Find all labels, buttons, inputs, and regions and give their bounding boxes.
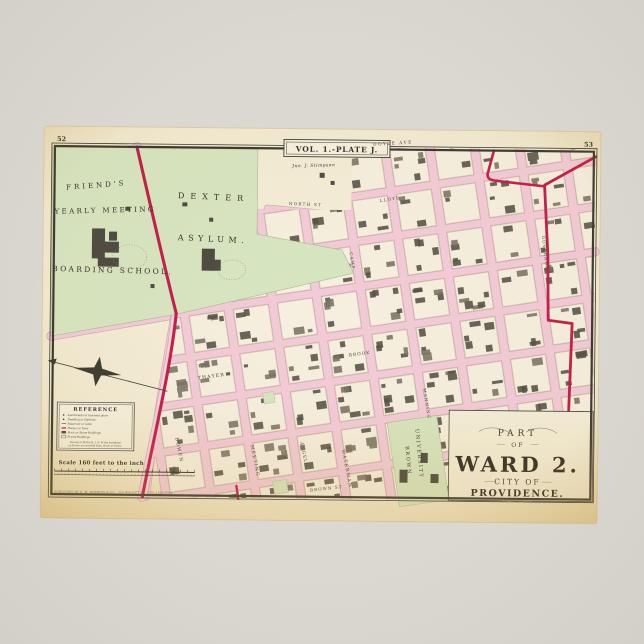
- map-artwork: VOL. 1.-PLATE J. 52 53 REFERENCE Apartme…: [0, 0, 644, 644]
- building-footprint: [634, 395, 639, 400]
- city-block: [606, 386, 644, 427]
- building-footprint: [612, 239, 617, 243]
- building-footprint: [201, 523, 209, 531]
- street-edge: [594, 40, 644, 554]
- building-footprint: [602, 349, 610, 356]
- building-footprint: [599, 325, 608, 334]
- building-footprint: [225, 523, 236, 528]
- building-footprint: [618, 436, 628, 445]
- city-block: [612, 431, 644, 472]
- poster-background: VOL. 1.-PLATE J. 52 53 REFERENCE Apartme…: [0, 0, 644, 644]
- building-footprint: [601, 257, 608, 264]
- building-footprint: [619, 371, 627, 378]
- paper-sheet: VOL. 1.-PLATE J. 52 53 REFERENCE Apartme…: [29, 24, 644, 643]
- building-footprint: [604, 286, 611, 290]
- building-footprint: [603, 223, 613, 230]
- building-footprint: [599, 457, 604, 462]
- building-footprint: [632, 413, 642, 421]
- building-footprint: [618, 328, 629, 333]
- building-footprint: [623, 350, 633, 358]
- building-footprint: [606, 374, 613, 380]
- city-block: [599, 342, 638, 383]
- age-overlay: [40, 400, 598, 524]
- street: [594, 40, 644, 554]
- building-footprint: [614, 261, 619, 266]
- building-footprint: [198, 525, 208, 531]
- building-footprint: [606, 226, 615, 234]
